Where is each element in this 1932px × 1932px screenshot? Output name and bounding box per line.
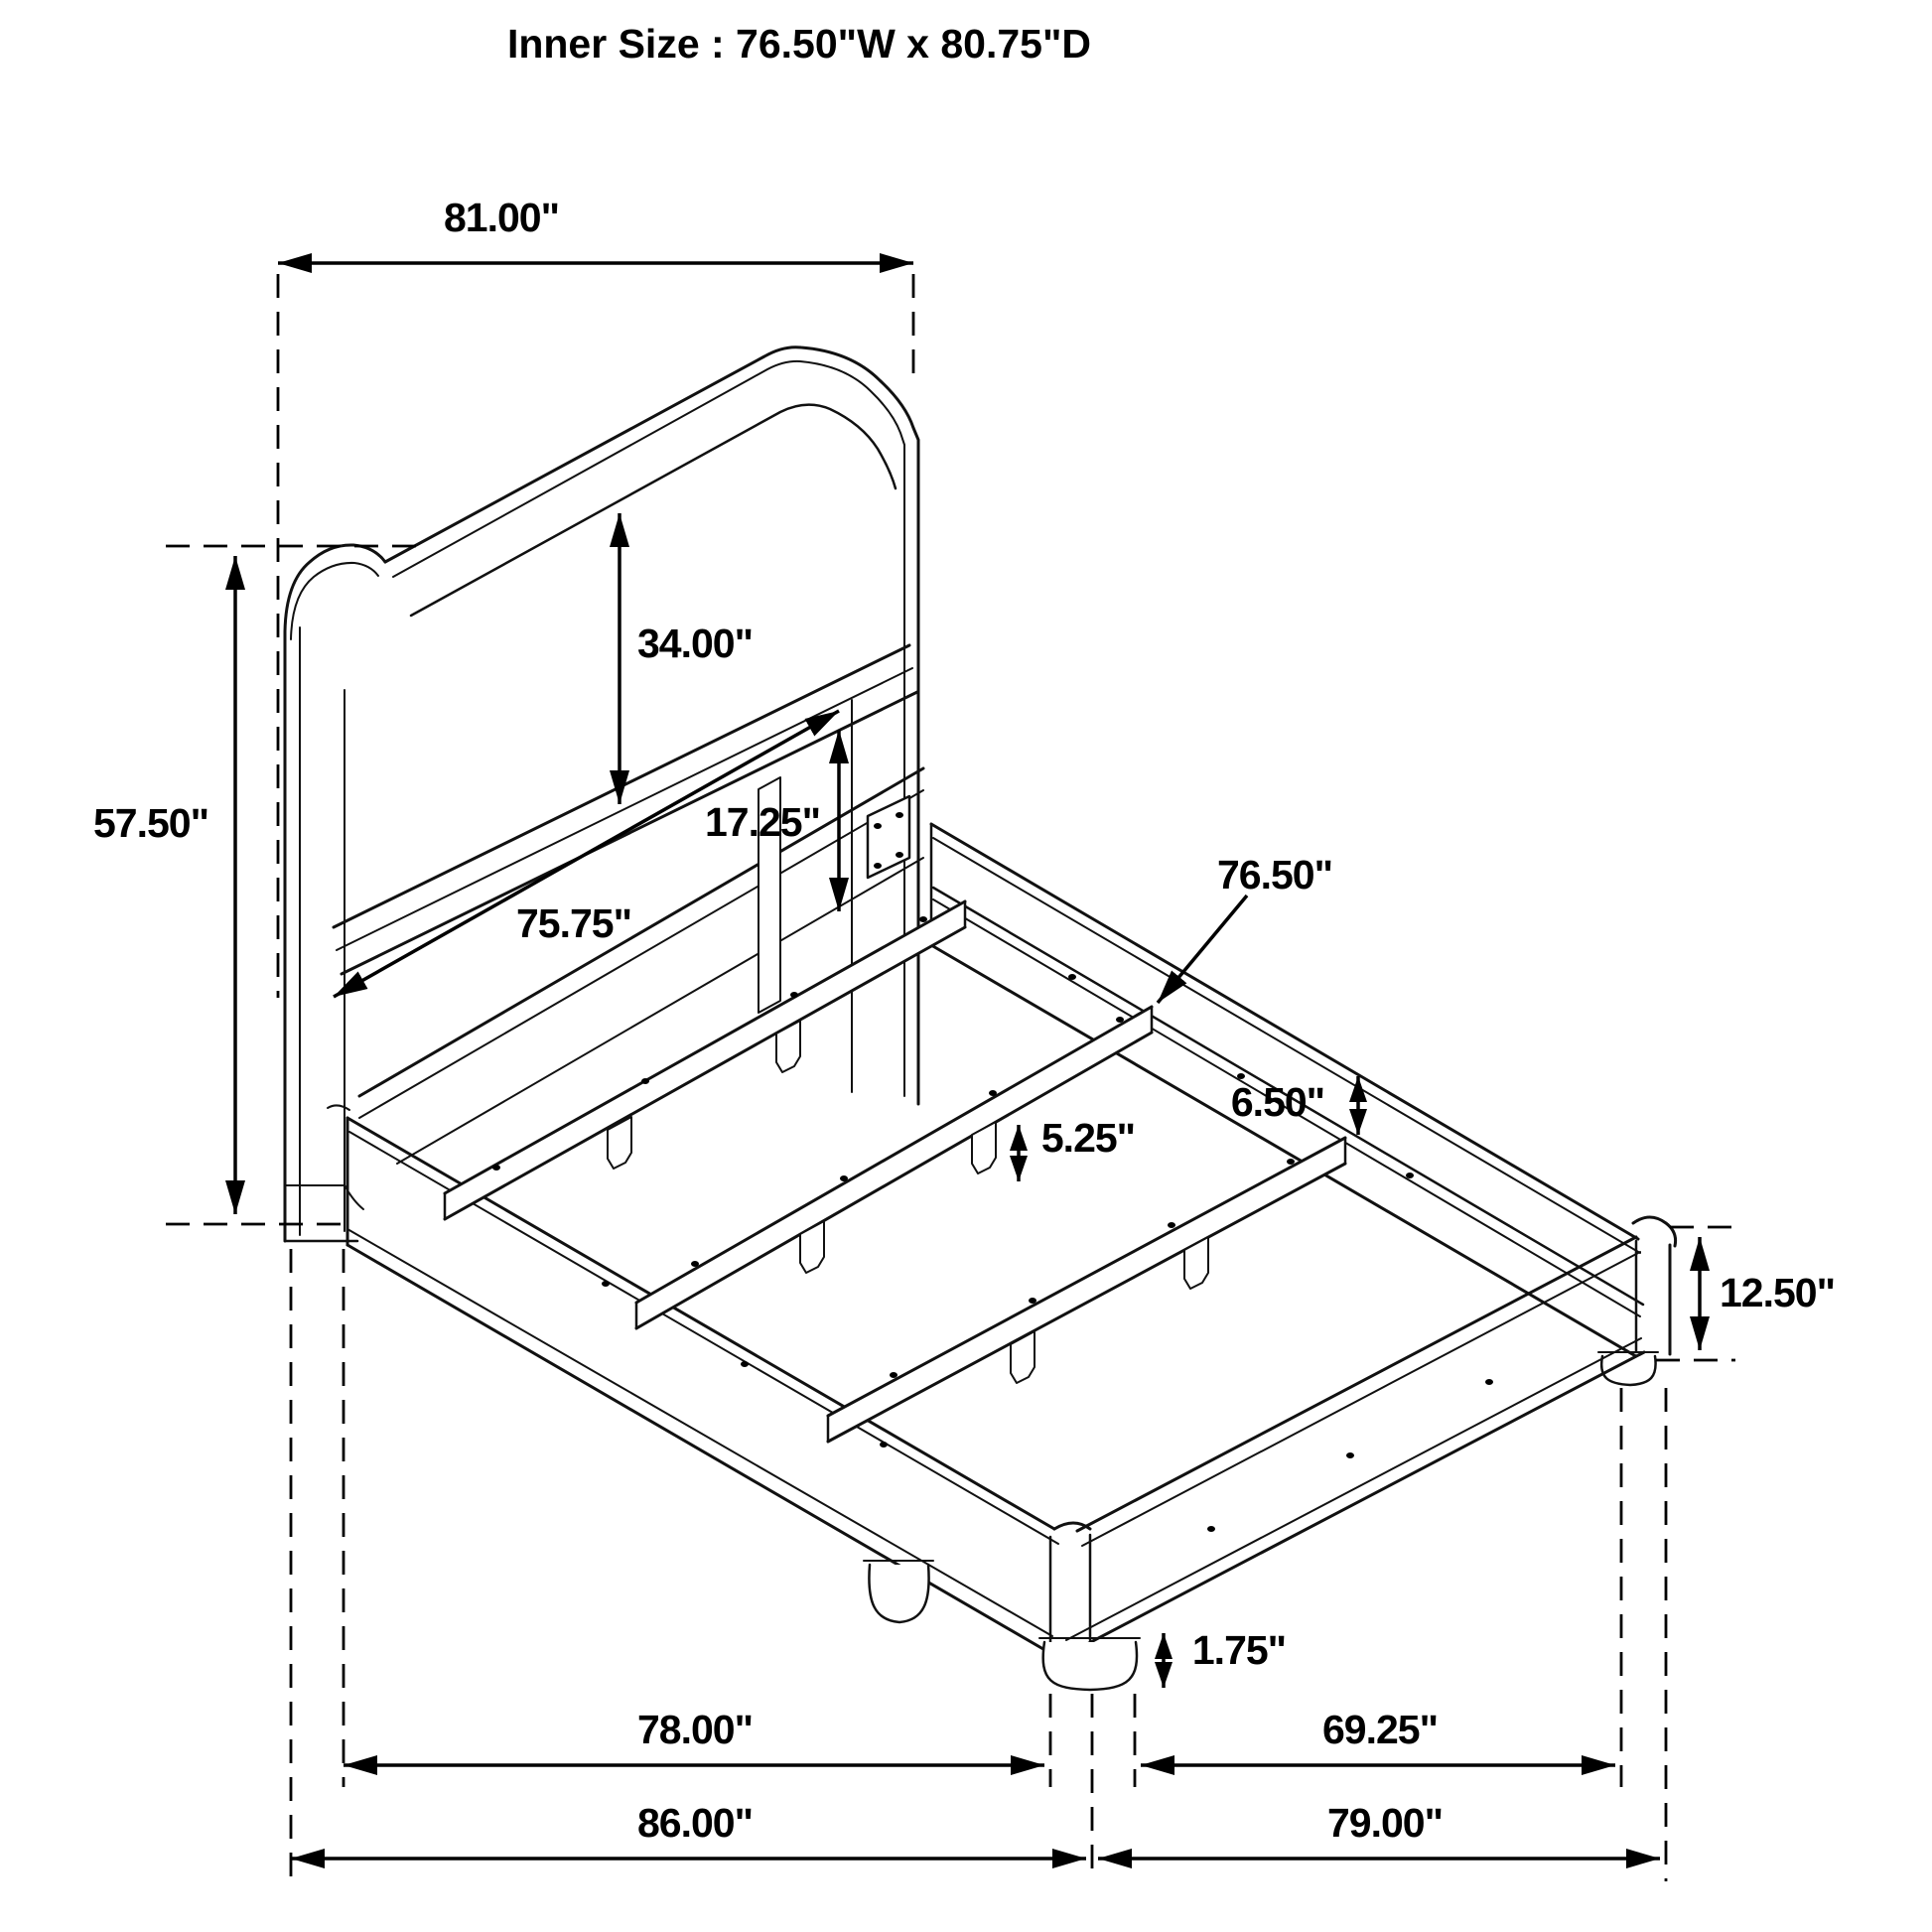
- dim-3400-label: 34.00": [637, 621, 753, 666]
- dim-5750-label: 57.50": [93, 800, 208, 846]
- dim-foot-height: 1.75": [1164, 1627, 1286, 1688]
- dim-6925-label: 69.25": [1322, 1707, 1438, 1752]
- foot-rail: [1039, 1237, 1644, 1690]
- dim-7800-label: 78.00": [637, 1707, 753, 1752]
- dim-81-label: 81.00": [444, 195, 559, 240]
- dim-7575-label: 75.75": [516, 900, 631, 946]
- dim-total-width: 79.00": [1098, 1800, 1660, 1859]
- dim-foot-rail-inner: 69.25": [1141, 1707, 1615, 1765]
- bed-frame-dimension-diagram: 81.00" 57.50" 34.00" 17.25" 75.75" 76.50…: [0, 0, 1932, 1932]
- dim-175-label: 1.75": [1192, 1627, 1286, 1673]
- dim-525-label: 5.25": [1041, 1115, 1135, 1161]
- dim-total-depth: 86.00": [291, 1800, 1086, 1859]
- diagram-title: Inner Size : 76.50"W x 80.75"D: [507, 21, 1091, 67]
- dim-1725-label: 17.25": [705, 799, 820, 845]
- dim-side-rail-height: 12.50": [1656, 1227, 1835, 1360]
- center-corner-foot: [1043, 1642, 1137, 1690]
- dim-rail-length-inner: 78.00": [344, 1707, 1044, 1765]
- dim-7900-label: 79.00": [1327, 1800, 1443, 1846]
- dim-1250-label: 12.50": [1720, 1270, 1835, 1315]
- slat-3: [828, 1138, 1345, 1442]
- dim-8600-label: 86.00": [637, 1800, 753, 1846]
- dim-slat-length: 76.50": [1158, 852, 1332, 1003]
- dim-7650-label: 76.50": [1217, 852, 1332, 897]
- left-rail-mid-foot: [869, 1565, 928, 1622]
- diagram-canvas: 81.00" 57.50" 34.00" 17.25" 75.75" 76.50…: [0, 0, 1932, 1932]
- dim-slat-leg-height: 5.25": [1019, 1115, 1135, 1181]
- dim-650-label: 6.50": [1231, 1079, 1324, 1125]
